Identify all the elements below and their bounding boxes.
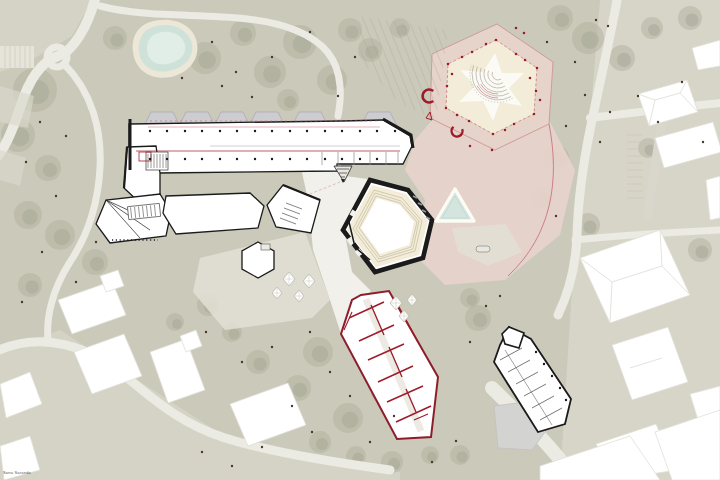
- tree-trunk-dot: [235, 71, 237, 73]
- tree-trunk-dot: [657, 121, 659, 123]
- tree-trunk-dot: [681, 81, 683, 83]
- tree-trunk-dot: [261, 446, 263, 448]
- tree-canopy-shade: [25, 280, 38, 293]
- tree-trunk-dot: [21, 301, 23, 303]
- tree-trunk-dot: [65, 135, 67, 137]
- tree-canopy-shade: [43, 163, 57, 177]
- tree-trunk-dot: [499, 295, 501, 297]
- tree-trunk-dot: [337, 95, 339, 97]
- tree-trunk-dot: [181, 77, 183, 79]
- tree-trunk-dot: [241, 361, 243, 363]
- tree-canopy-shade: [473, 313, 487, 327]
- tree-canopy-shade: [581, 31, 599, 49]
- tree-canopy-shade: [263, 65, 281, 83]
- tree-trunk-dot: [485, 305, 487, 307]
- tree-trunk-dot: [75, 281, 77, 283]
- tree-canopy-shade: [583, 220, 596, 233]
- tree-trunk-dot: [95, 241, 97, 243]
- tree-canopy-shade: [685, 13, 698, 26]
- tree-trunk-dot: [55, 195, 57, 197]
- tree-trunk-dot: [702, 141, 704, 143]
- tree-trunk-dot: [211, 41, 213, 43]
- tree-trunk-dot: [546, 41, 548, 43]
- tree-trunk-dot: [354, 56, 356, 58]
- tree-trunk-dot: [205, 331, 207, 333]
- signature-text: Sana Saranda: [3, 470, 32, 475]
- tree-canopy-shade: [345, 25, 358, 38]
- tree-trunk-dot: [25, 161, 27, 163]
- tree-canopy-shade: [648, 24, 660, 36]
- tree-canopy-shade: [198, 51, 216, 69]
- tree-canopy-shade: [293, 383, 307, 397]
- tree-canopy-shade: [617, 53, 631, 67]
- tree-trunk-dot: [221, 85, 223, 87]
- tree-trunk-dot: [369, 441, 371, 443]
- tree-canopy-shade: [238, 28, 252, 42]
- tree-trunk-dot: [469, 341, 471, 343]
- tree-trunk-dot: [291, 405, 293, 407]
- tree-trunk-dot: [607, 25, 609, 27]
- tree-trunk-dot: [39, 121, 41, 123]
- tree-canopy-shade: [90, 257, 104, 271]
- tree-canopy-shade: [342, 412, 359, 429]
- tree-trunk-dot: [393, 415, 395, 417]
- tree-trunk-dot: [455, 440, 457, 442]
- tree-trunk-dot: [41, 251, 43, 253]
- tree-trunk-dot: [574, 61, 576, 63]
- tree-canopy-shade: [22, 209, 37, 224]
- tree-trunk-dot: [251, 96, 253, 98]
- tree-canopy-shade: [555, 13, 569, 27]
- tree-trunk-dot: [311, 431, 313, 433]
- bench: [476, 246, 490, 252]
- tree-canopy-shade: [253, 357, 266, 370]
- tree-trunk-dot: [309, 331, 311, 333]
- tree-trunk-dot: [309, 31, 311, 33]
- tree-canopy-shade: [467, 295, 478, 306]
- tree-trunk-dot: [565, 125, 567, 127]
- site-plan-drawing: Sana Saranda: [0, 0, 720, 480]
- tree-canopy-shade: [229, 329, 240, 340]
- tree-trunk-dot: [555, 215, 557, 217]
- tree-trunk-dot: [271, 346, 273, 348]
- tree-trunk-dot: [599, 141, 601, 143]
- tree-trunk-dot: [637, 95, 639, 97]
- tree-canopy-shade: [54, 229, 71, 246]
- tree-canopy-shade: [312, 346, 329, 363]
- tree-canopy-shade: [695, 245, 708, 258]
- tree-trunk-dot: [231, 465, 233, 467]
- tree-trunk-dot: [271, 56, 273, 58]
- tree-canopy-shade: [110, 33, 123, 46]
- tree-trunk-dot: [201, 451, 203, 453]
- site-plan-canvas: Sana Saranda: [0, 0, 720, 480]
- tree-canopy-shade: [316, 438, 328, 450]
- tree-trunk-dot: [584, 94, 586, 96]
- tree-canopy-shade: [284, 96, 296, 108]
- tree-canopy-shade: [172, 319, 182, 329]
- tree-canopy-shade: [457, 452, 468, 463]
- tree-trunk-dot: [609, 111, 611, 113]
- tree-trunk-dot: [349, 395, 351, 397]
- tree-trunk-dot: [595, 19, 597, 21]
- tree-trunk-dot: [431, 461, 433, 463]
- tree-canopy-shade: [427, 452, 437, 462]
- tree-trunk-dot: [329, 371, 331, 373]
